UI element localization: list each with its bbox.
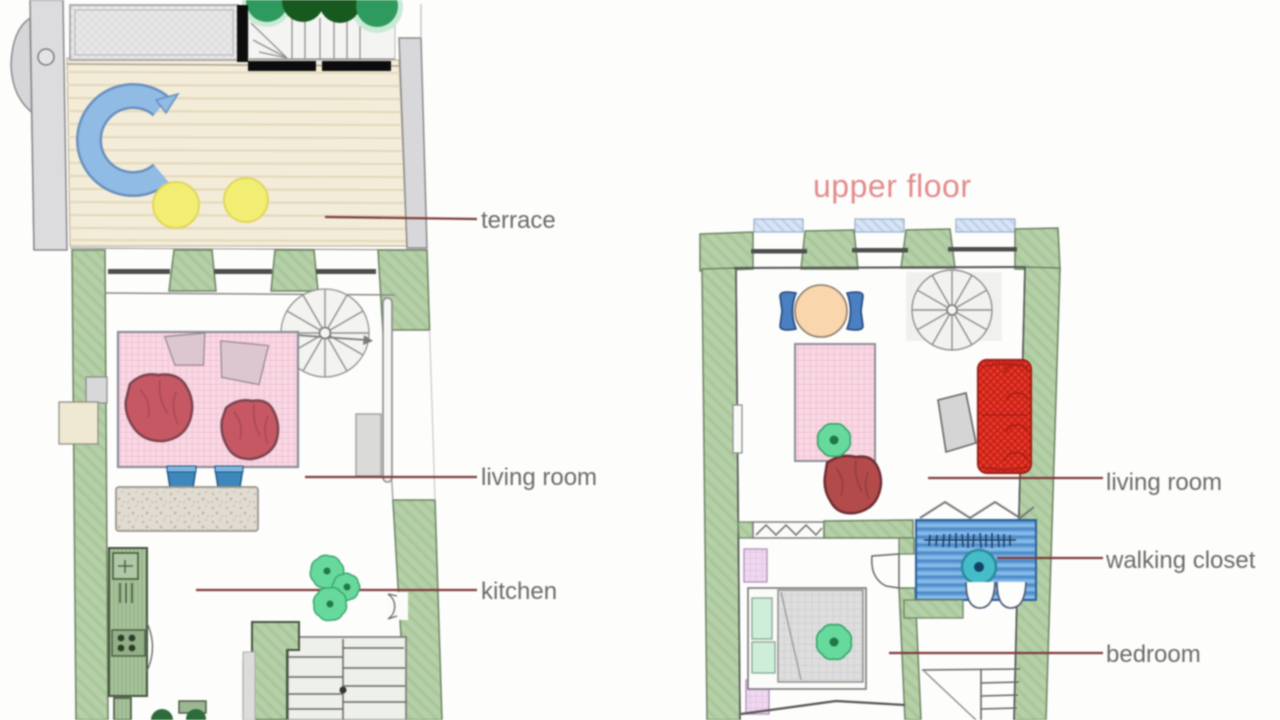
svg-text:upper floor: upper floor xyxy=(813,168,971,204)
svg-text:terrace: terrace xyxy=(481,207,556,234)
svg-text:bedroom: bedroom xyxy=(1106,641,1201,668)
svg-text:living room: living room xyxy=(1106,469,1222,496)
svg-text:living room: living room xyxy=(481,464,597,491)
svg-text:kitchen: kitchen xyxy=(481,578,557,605)
svg-text:walking closet: walking closet xyxy=(1105,547,1256,574)
